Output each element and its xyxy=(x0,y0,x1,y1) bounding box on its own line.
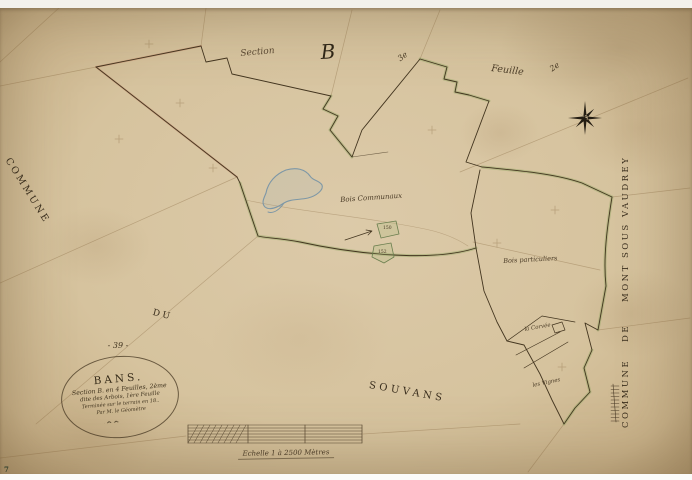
section-letter: B xyxy=(320,39,336,64)
right-commune-label: COMMUNE xyxy=(621,359,631,428)
scale-caption: Echelle 1 à 2500 Mètres xyxy=(238,448,334,460)
scan-margin-top xyxy=(0,0,692,8)
sheet-join-hatch xyxy=(611,384,619,422)
section-boundary xyxy=(96,46,612,424)
cadastral-map-scan: Section B 3e Feuille 2e COMMUNE DU SOUVA… xyxy=(0,0,692,480)
scan-margin-bottom xyxy=(0,474,692,480)
right-de-label: DE xyxy=(621,324,631,342)
parcel-number-b: 152 xyxy=(378,250,387,255)
survey-cross-marks xyxy=(115,40,566,371)
pond-outline xyxy=(263,169,322,213)
corner-folio-mark: 7 xyxy=(4,465,9,474)
parcel-number-a: 150 xyxy=(383,226,392,231)
sheet-folio-number: - 39 - xyxy=(88,341,148,350)
right-commune-name: MONT SOUS VAUDREY xyxy=(621,156,631,302)
boundary-red-tint xyxy=(96,46,237,177)
compass-rose-icon xyxy=(568,101,602,135)
scale-bar xyxy=(188,425,362,443)
arrow-mark xyxy=(345,230,372,240)
